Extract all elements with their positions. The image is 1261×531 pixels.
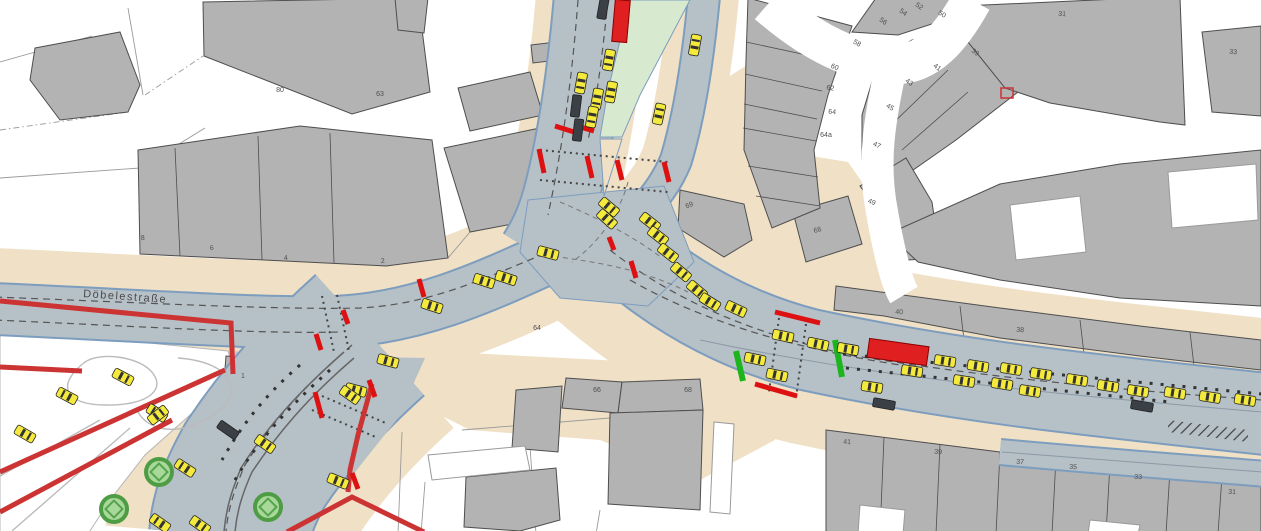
building-number-label: 33	[1229, 49, 1237, 57]
building-number-label: 31	[1228, 489, 1236, 496]
inner-streets-layer	[858, 505, 905, 531]
tree-icon	[255, 494, 281, 520]
building-number-label: 63	[376, 91, 384, 98]
building-number-label: 64	[533, 325, 541, 332]
building-number-label: 38	[1016, 327, 1024, 335]
building-number-label: 2	[381, 258, 385, 265]
building-number-label: 40	[895, 309, 903, 317]
buildings-layer	[1202, 26, 1261, 116]
building-number-label: 33	[1134, 474, 1142, 481]
buildings-layer	[464, 468, 560, 531]
vehicle-bus-red[interactable]	[612, 0, 631, 43]
vehicle-bus-red	[612, 0, 631, 43]
inner-streets-layer	[1168, 164, 1258, 228]
buildings-layer	[138, 126, 448, 266]
buildings-layer	[395, 0, 428, 33]
building-number-label: 68	[684, 387, 692, 394]
building-number-label: 39	[934, 449, 942, 456]
buildings-layer	[562, 378, 622, 413]
building-number-label: 6	[210, 245, 214, 252]
building-number-label: 80	[276, 87, 284, 94]
building-number-label: 31	[1058, 11, 1066, 19]
building-number-label: 62	[826, 84, 835, 92]
building-number-label: 41	[843, 439, 851, 446]
buildings-layer	[618, 379, 703, 413]
inner-streets-layer	[710, 422, 734, 514]
buildings-layer	[512, 386, 562, 452]
building-number-label: 37	[1016, 459, 1024, 466]
building-number-label: 4	[284, 255, 288, 262]
building-number-label: 1	[241, 373, 245, 380]
tree-icon	[146, 459, 172, 485]
tree-icon	[101, 496, 127, 522]
building-number-label: 66	[593, 387, 601, 394]
inner-streets-layer	[1010, 196, 1086, 260]
map-stage: Döbelestraße 806386421646668696854565250…	[0, 0, 1261, 531]
building-number-label: 35	[1069, 464, 1077, 471]
building-number-label: 8	[141, 235, 145, 242]
map-canvas[interactable]: Döbelestraße 806386421646668696854565250…	[0, 0, 1261, 531]
building-number-label: 64a	[820, 132, 832, 139]
building-number-label: 64	[828, 109, 836, 117]
buildings-layer	[608, 410, 703, 510]
